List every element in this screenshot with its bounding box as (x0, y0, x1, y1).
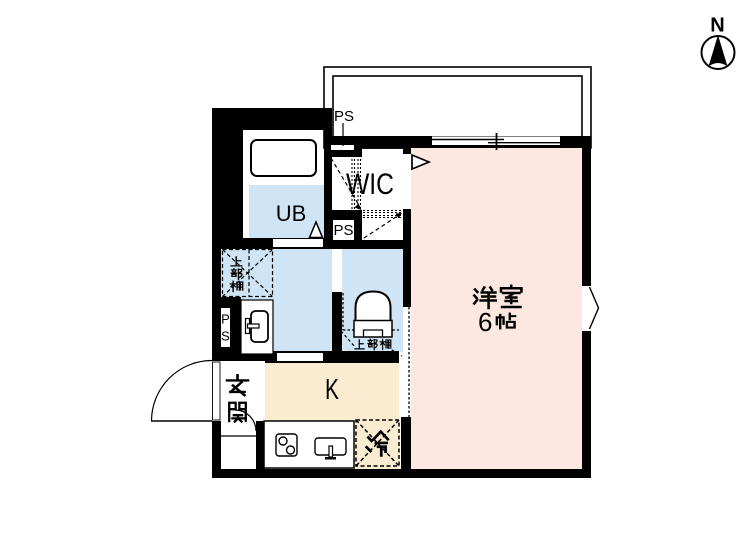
svg-text:K: K (325, 374, 339, 406)
svg-text:P: P (221, 312, 230, 327)
svg-text:PS: PS (334, 108, 354, 125)
svg-text:6: 6 (478, 307, 492, 337)
svg-text:PS: PS (333, 222, 353, 239)
svg-text:S: S (221, 329, 230, 344)
svg-text:UB: UB (276, 201, 307, 226)
svg-text:N: N (710, 15, 724, 37)
